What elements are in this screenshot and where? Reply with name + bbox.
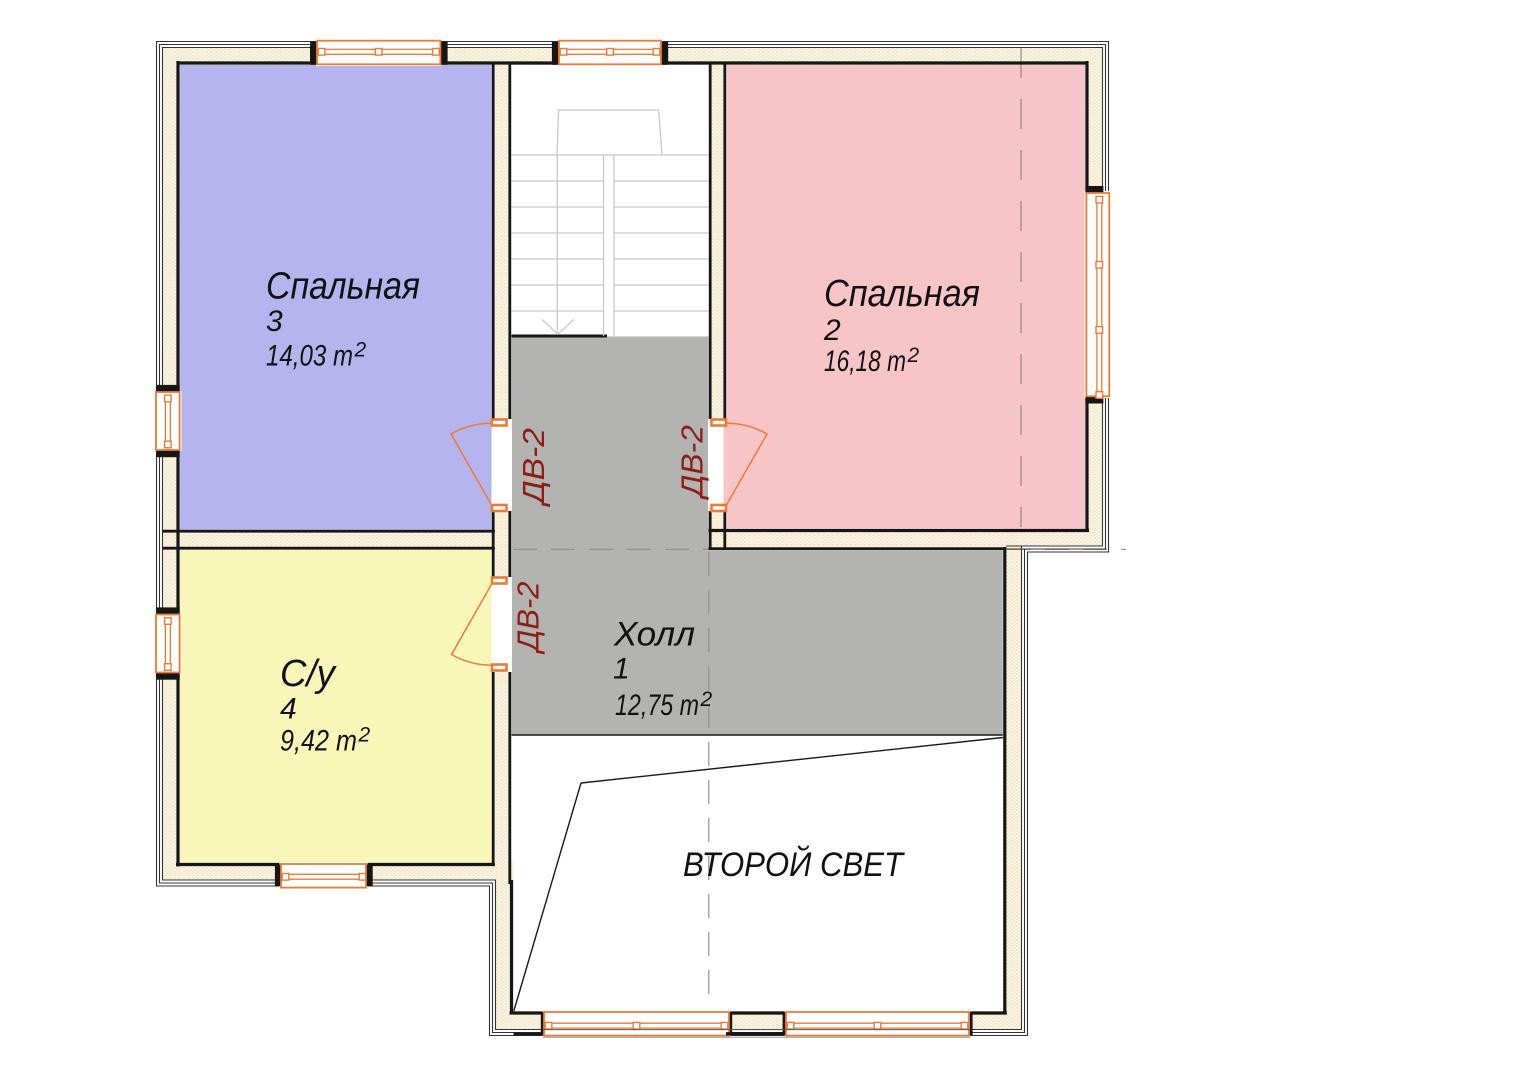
svg-text:Спальная: Спальная <box>266 266 420 308</box>
svg-text:ДВ-2: ДВ-2 <box>511 582 546 655</box>
svg-text:9,42 m: 9,42 m <box>280 725 357 758</box>
svg-text:2: 2 <box>358 724 371 747</box>
svg-text:Холл: Холл <box>613 616 695 654</box>
svg-text:4: 4 <box>280 693 297 726</box>
svg-text:3: 3 <box>266 305 283 338</box>
svg-text:ДВ-2: ДВ-2 <box>675 425 710 500</box>
svg-text:ВТОРОЙ СВЕТ: ВТОРОЙ СВЕТ <box>683 845 905 884</box>
svg-text:16,18 m: 16,18 m <box>824 345 906 378</box>
svg-text:14,03 m: 14,03 m <box>266 340 353 373</box>
svg-text:1: 1 <box>613 653 630 686</box>
svg-text:12,75 m: 12,75 m <box>615 689 699 722</box>
svg-text:ДВ-2: ДВ-2 <box>516 428 551 507</box>
svg-text:2: 2 <box>823 314 841 347</box>
svg-text:2: 2 <box>354 339 367 362</box>
svg-text:2: 2 <box>700 688 713 711</box>
svg-text:Спальная: Спальная <box>824 273 980 315</box>
svg-text:2: 2 <box>907 344 920 367</box>
svg-text:С/у: С/у <box>280 653 337 695</box>
